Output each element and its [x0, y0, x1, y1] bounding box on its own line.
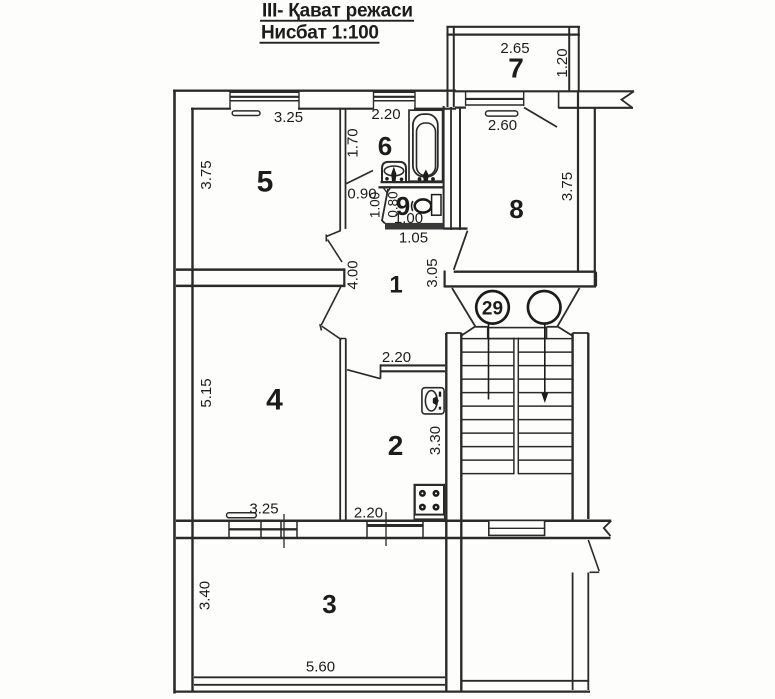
svg-text:3.30: 3.30	[427, 426, 444, 455]
svg-text:5.15: 5.15	[198, 378, 215, 407]
svg-text:Нисбат 1:100: Нисбат 1:100	[261, 23, 379, 44]
svg-text:2.20: 2.20	[371, 106, 400, 123]
svg-text:3.40: 3.40	[197, 581, 214, 610]
svg-text:5: 5	[257, 166, 274, 199]
svg-text:6: 6	[378, 131, 392, 161]
svg-text:1.05: 1.05	[399, 230, 428, 247]
svg-text:3.25: 3.25	[274, 109, 303, 126]
svg-text:9: 9	[396, 191, 410, 221]
svg-text:3: 3	[322, 589, 336, 619]
svg-text:2.20: 2.20	[382, 349, 411, 366]
svg-text:1: 1	[389, 272, 402, 299]
svg-text:7: 7	[508, 53, 524, 84]
svg-text:3.05: 3.05	[424, 258, 441, 287]
svg-text:2.20: 2.20	[354, 505, 383, 522]
svg-text:2.60: 2.60	[488, 117, 517, 134]
svg-text:3.25: 3.25	[249, 501, 278, 518]
svg-text:29: 29	[482, 299, 503, 320]
svg-text:2: 2	[388, 430, 404, 461]
svg-text:1.00: 1.00	[368, 192, 383, 218]
svg-text:1.70: 1.70	[345, 128, 362, 157]
svg-text:4.00: 4.00	[345, 260, 362, 289]
svg-text:8: 8	[509, 194, 523, 224]
svg-text:1.20: 1.20	[554, 48, 571, 77]
svg-text:III- Қават режаси: III- Қават режаси	[262, 1, 413, 22]
svg-text:4: 4	[266, 384, 283, 417]
svg-text:3.75: 3.75	[559, 172, 576, 201]
svg-text:5.60: 5.60	[306, 659, 335, 676]
svg-text:3.75: 3.75	[198, 160, 215, 189]
